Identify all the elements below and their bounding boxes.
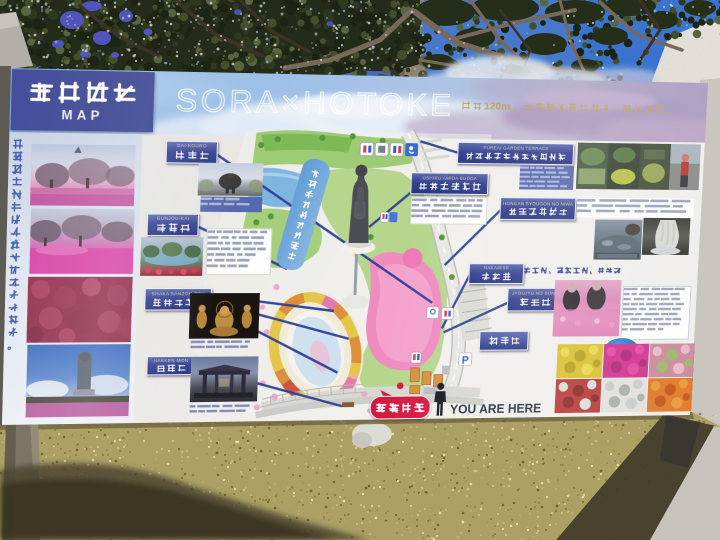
svg-text:P: P	[461, 354, 469, 366]
